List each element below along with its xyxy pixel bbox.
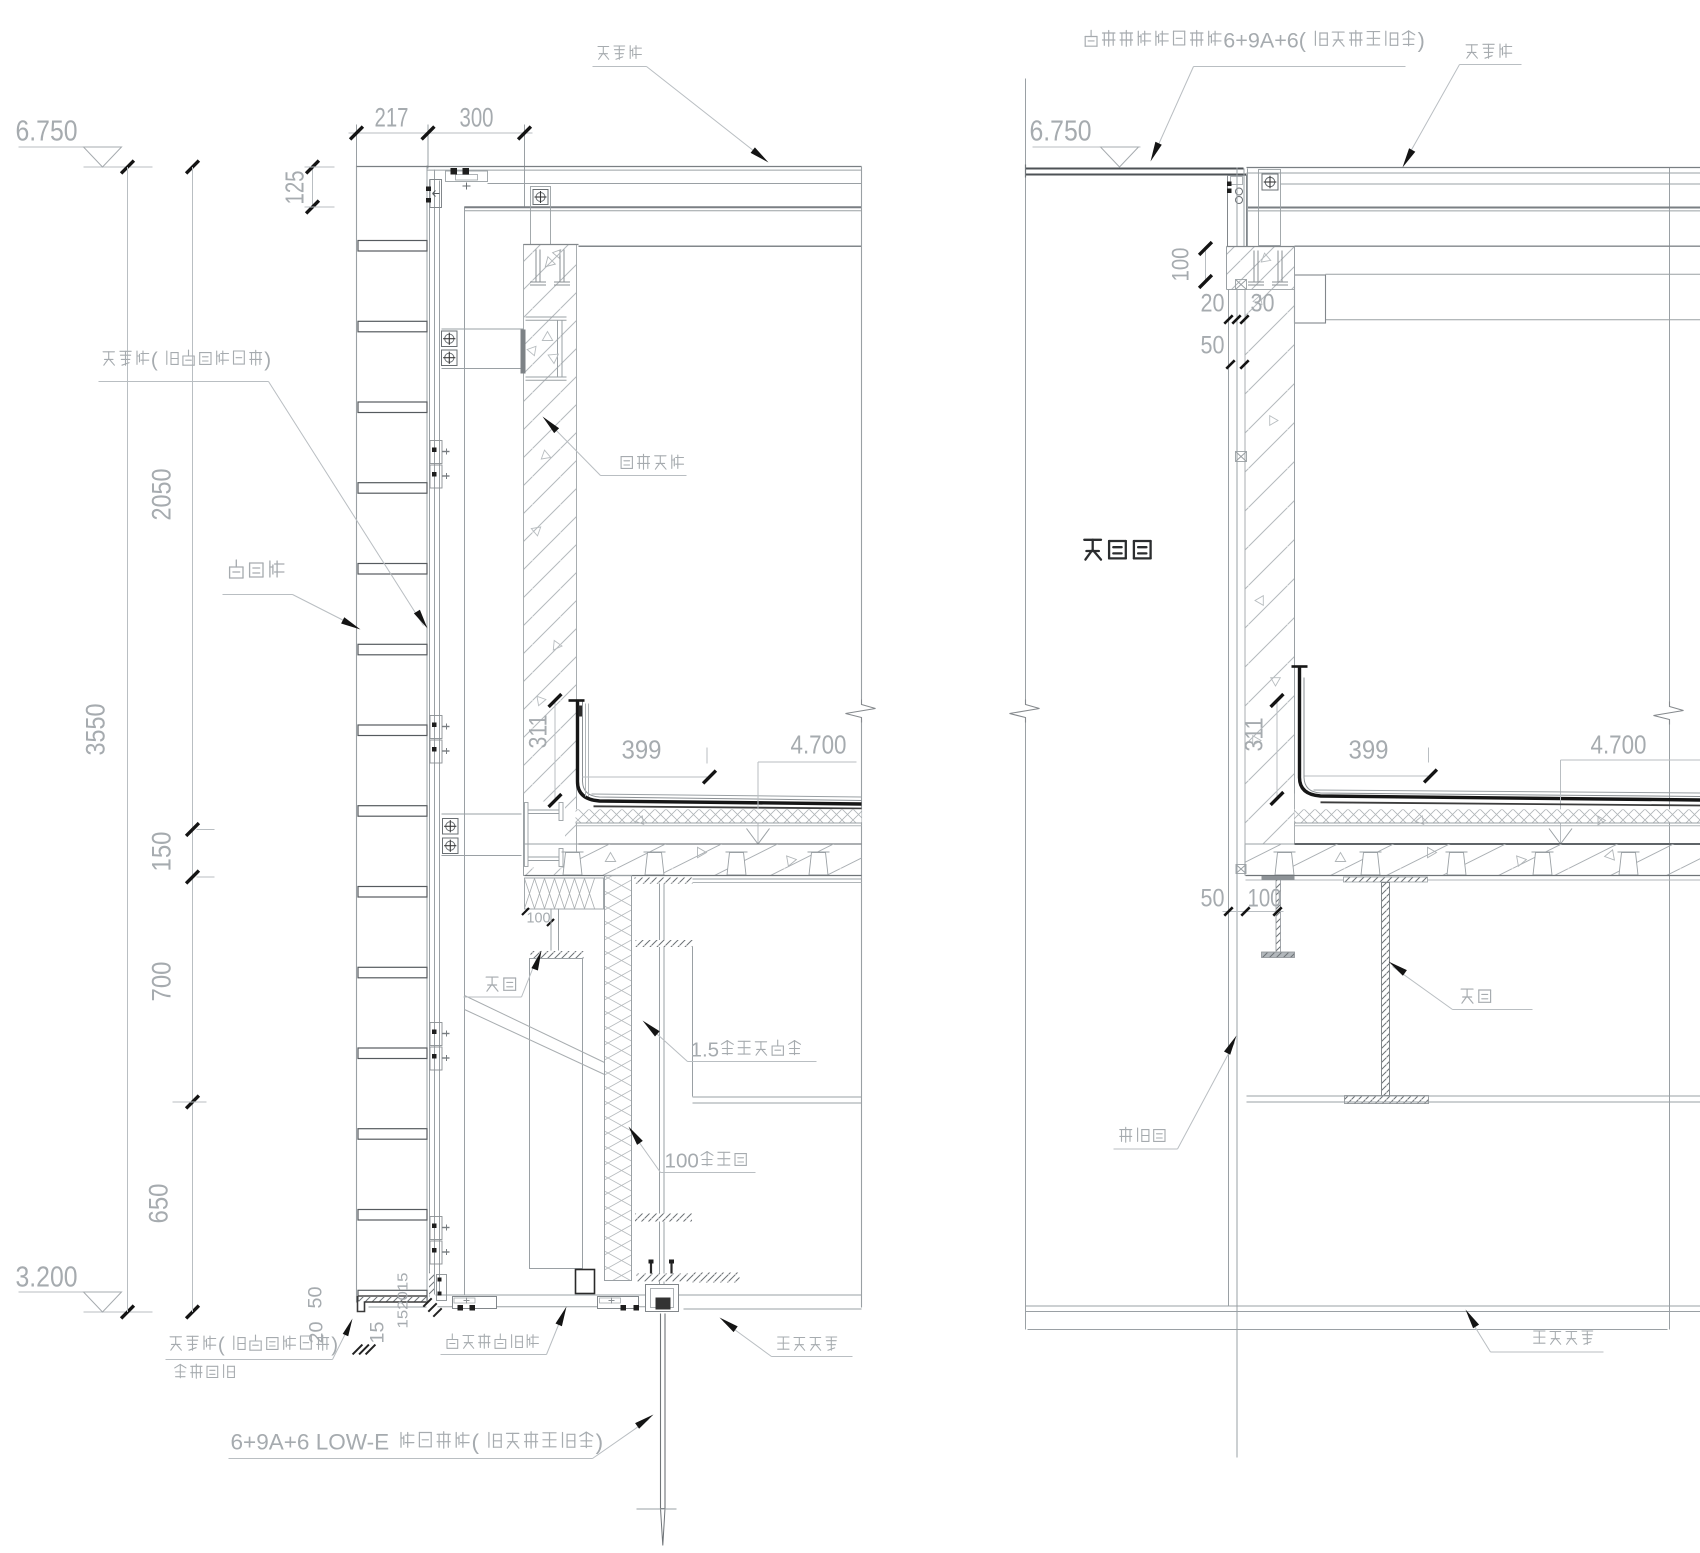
svg-text:150: 150 bbox=[147, 832, 177, 872]
svg-text:): ) bbox=[1418, 28, 1425, 53]
svg-text:20: 20 bbox=[1201, 290, 1225, 318]
svg-text:3550: 3550 bbox=[81, 704, 111, 756]
svg-text:(: ( bbox=[151, 349, 158, 372]
svg-text:2050: 2050 bbox=[147, 469, 177, 521]
svg-text:3.200: 3.200 bbox=[16, 1262, 78, 1294]
svg-text:(: ( bbox=[472, 1430, 480, 1455]
svg-text:125: 125 bbox=[280, 171, 310, 205]
svg-text:399: 399 bbox=[622, 735, 662, 765]
svg-text:100: 100 bbox=[665, 1150, 699, 1173]
svg-text:): ) bbox=[264, 349, 271, 372]
svg-text:100: 100 bbox=[1168, 248, 1195, 282]
svg-text:15: 15 bbox=[368, 1322, 389, 1344]
svg-text:6+9A+6 LOW-E: 6+9A+6 LOW-E bbox=[231, 1430, 390, 1455]
svg-text:1.5: 1.5 bbox=[691, 1039, 720, 1062]
svg-text:100: 100 bbox=[1248, 885, 1282, 913]
svg-text:): ) bbox=[331, 1334, 338, 1357]
svg-text:311: 311 bbox=[525, 715, 553, 749]
svg-text:4.700: 4.700 bbox=[791, 730, 847, 760]
svg-text:650: 650 bbox=[144, 1184, 174, 1224]
svg-text:20: 20 bbox=[307, 1322, 328, 1344]
svg-text:152015: 152015 bbox=[395, 1273, 412, 1329]
svg-text:6+9A+6(: 6+9A+6( bbox=[1223, 28, 1306, 53]
svg-text:311: 311 bbox=[1241, 718, 1269, 752]
svg-text:): ) bbox=[596, 1430, 604, 1455]
svg-text:50: 50 bbox=[1201, 332, 1225, 360]
svg-text:100: 100 bbox=[527, 910, 551, 927]
svg-text:50: 50 bbox=[1201, 885, 1225, 913]
svg-text:217: 217 bbox=[375, 103, 409, 133]
svg-text:4.700: 4.700 bbox=[1591, 730, 1647, 760]
svg-text:6.750: 6.750 bbox=[16, 116, 78, 148]
svg-text:6.750: 6.750 bbox=[1030, 116, 1092, 148]
svg-text:700: 700 bbox=[147, 962, 177, 1002]
svg-text:50: 50 bbox=[306, 1287, 327, 1309]
svg-text:399: 399 bbox=[1349, 735, 1389, 765]
svg-text:30: 30 bbox=[1251, 290, 1275, 318]
svg-text:(: ( bbox=[218, 1334, 225, 1357]
svg-text:300: 300 bbox=[460, 103, 494, 133]
